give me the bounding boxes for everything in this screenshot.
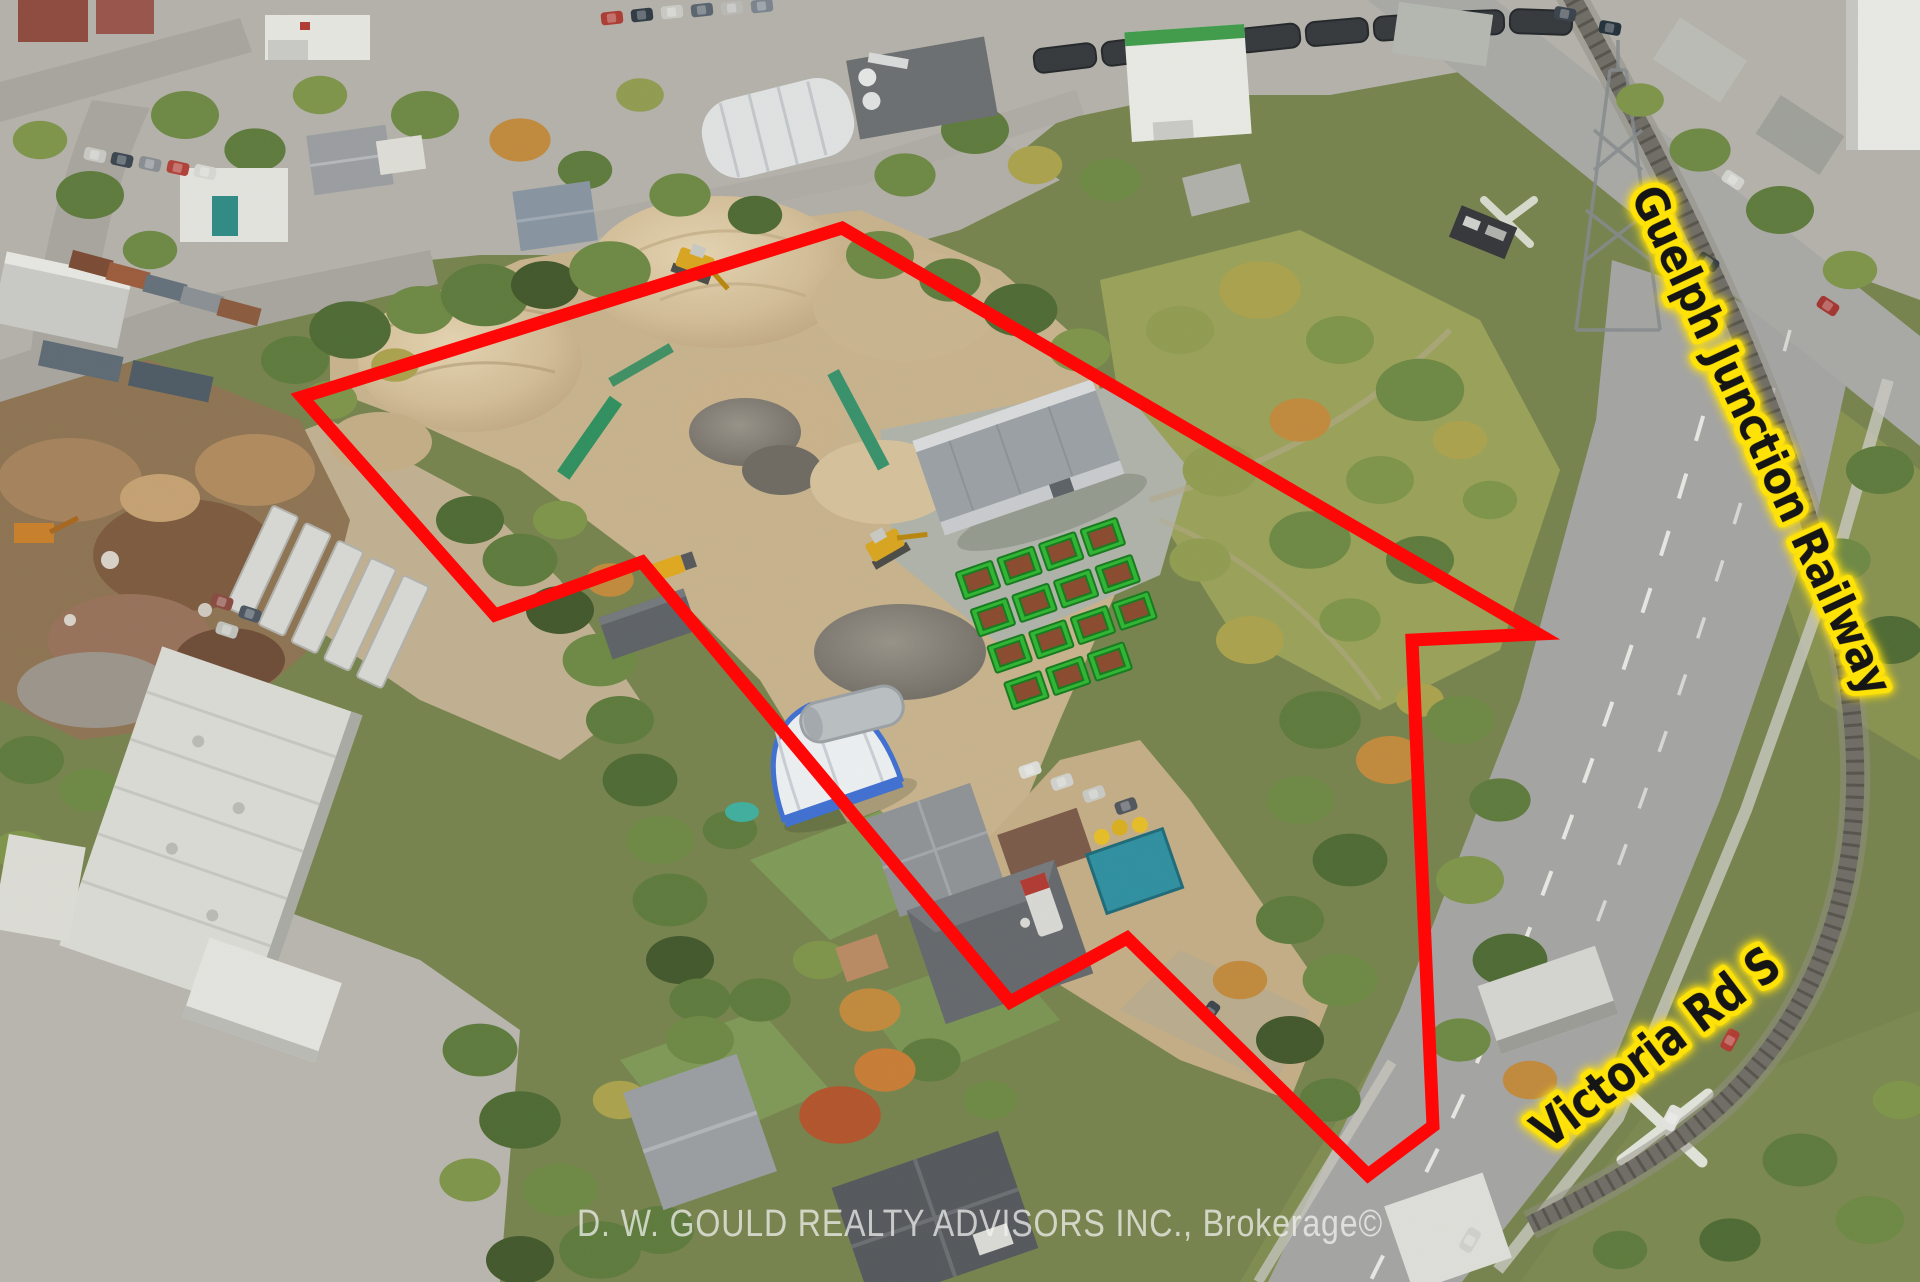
brokerage-watermark: D. W. GOULD REALTY ADVISORS INC., Broker… [577, 1203, 1383, 1245]
photo-canvas: Guelph Junction Railway Victoria Rd S D.… [0, 0, 1920, 1282]
aerial-photo: Guelph Junction Railway Victoria Rd S D.… [0, 0, 1920, 1282]
